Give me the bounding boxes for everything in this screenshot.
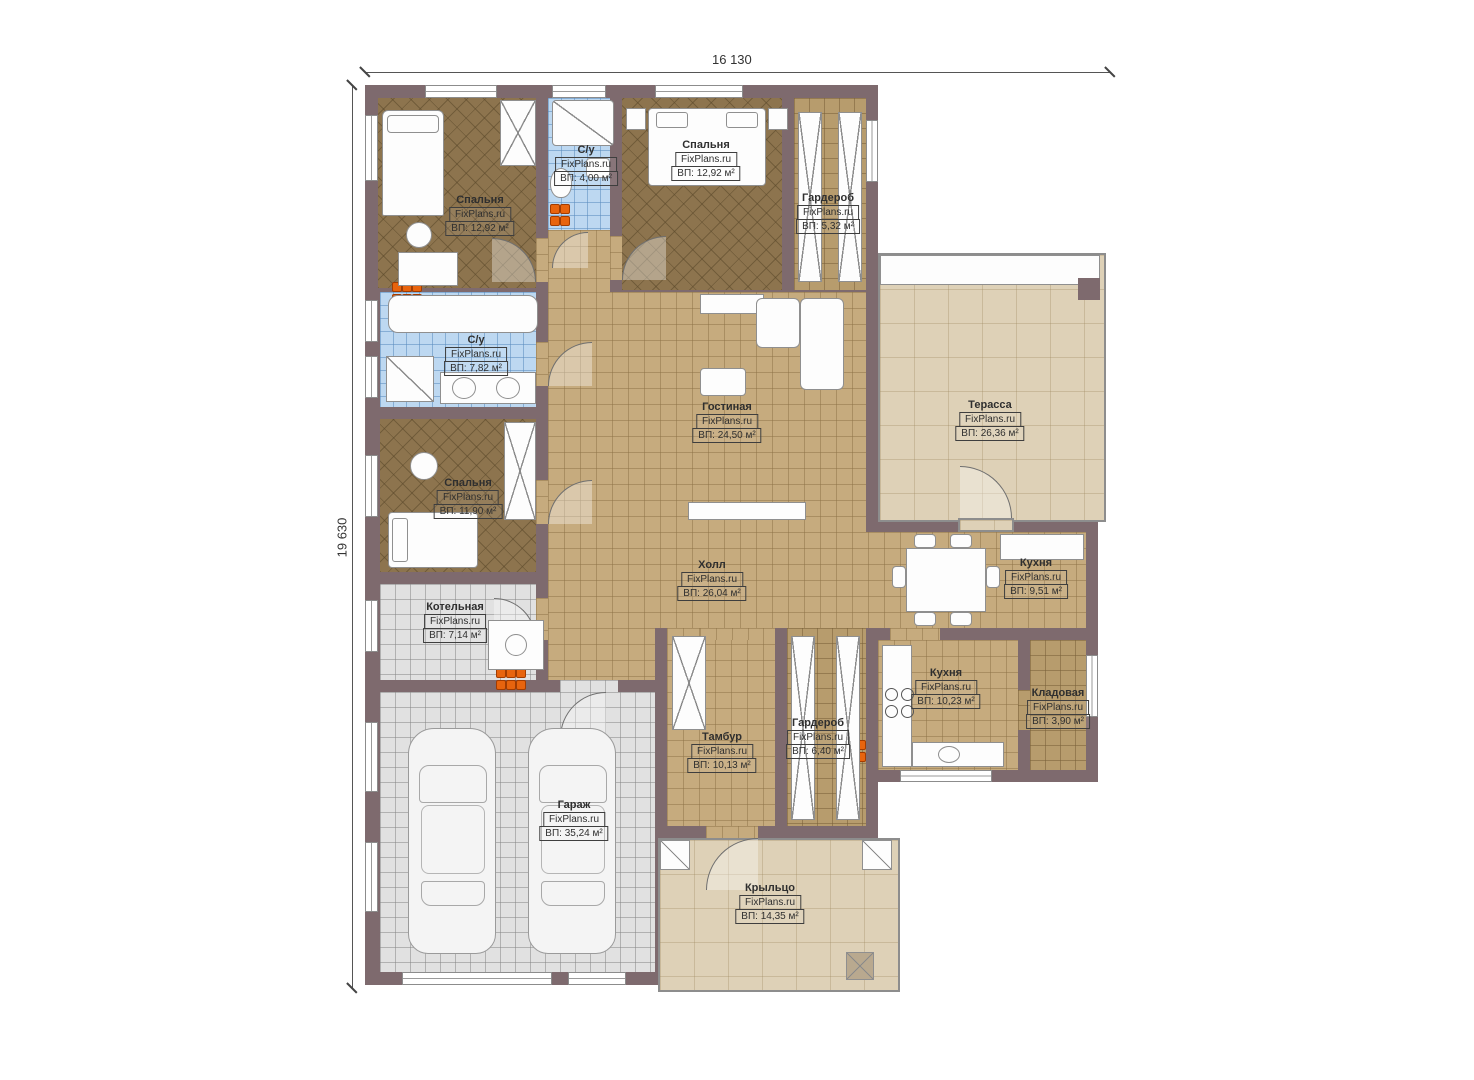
window (365, 300, 378, 342)
room-area: ВП: 14,35 м² (735, 909, 804, 924)
room-label-garage: Гараж FixPlans.ru ВП: 35,24 м² (539, 799, 608, 841)
porch-corner-hatch (660, 840, 690, 870)
room-brand: FixPlans.ru (555, 157, 617, 172)
room-label-wardrobe-top: Гардероб FixPlans.ru ВП: 5,32 м² (796, 192, 860, 234)
dimension-width-label: 16 130 (712, 52, 752, 67)
pillow-icon (392, 518, 408, 562)
car-icon (528, 728, 616, 954)
window (425, 85, 497, 98)
room-label-kitchen: Кухня FixPlans.ru ВП: 10,23 м² (911, 667, 980, 709)
room-area: ВП: 24,50 м² (692, 428, 761, 443)
door-gap (706, 826, 758, 838)
room-brand: FixPlans.ru (681, 572, 743, 587)
room-brand: FixPlans.ru (696, 414, 758, 429)
room-label-tambour: Тамбур FixPlans.ru ВП: 10,13 м² (687, 731, 756, 773)
dimension-line-top (365, 72, 1110, 73)
room-brand: FixPlans.ru (449, 207, 511, 222)
window (365, 722, 378, 792)
room-name: Гардероб (802, 192, 854, 205)
terrace-roof-edge (880, 255, 1100, 285)
room-name: Терасса (968, 399, 1012, 412)
dimension-height-label: 19 630 (334, 518, 349, 558)
door-gap (610, 236, 622, 280)
porch-corner-hatch (862, 840, 892, 870)
coffee-table-icon (700, 368, 746, 396)
door-gap (958, 518, 1014, 532)
window (655, 85, 743, 98)
room-name: С/у (577, 144, 594, 157)
sofa-icon (800, 298, 844, 390)
room-area: ВП: 4,00 м² (554, 171, 618, 186)
closet-icon (504, 422, 536, 520)
window (365, 115, 378, 181)
room-name: Спальня (444, 477, 492, 490)
window (552, 85, 606, 98)
room-area: ВП: 5,32 м² (796, 219, 860, 234)
room-name: Холл (698, 559, 726, 572)
room-brand: FixPlans.ru (543, 812, 605, 827)
heater-icon (550, 204, 568, 226)
chair-icon (950, 612, 972, 626)
room-label-terrace: Терасса FixPlans.ru ВП: 26,36 м² (955, 399, 1024, 441)
room-label-bedroom-top-left: Спальня FixPlans.ru ВП: 12,92 м² (445, 194, 514, 236)
chair-icon (410, 452, 438, 480)
door-gap (890, 628, 940, 640)
room-name: Кладовая (1032, 687, 1085, 700)
room-label-wc-middle: С/у FixPlans.ru ВП: 7,82 м² (444, 334, 508, 376)
room-name: Гараж (558, 799, 591, 812)
corridor-down (548, 628, 655, 680)
room-brand: FixPlans.ru (424, 614, 486, 629)
room-name: Спальня (456, 194, 504, 207)
room-name: С/у (467, 334, 484, 347)
room-area: ВП: 9,51 м² (1004, 584, 1068, 599)
garage-gate (402, 972, 552, 985)
window (365, 842, 378, 912)
room-name: Гостиная (702, 401, 752, 414)
room-area: ВП: 12,92 м² (671, 166, 740, 181)
tv-console-icon (688, 502, 806, 520)
room-name: Тамбур (702, 731, 742, 744)
room-brand: FixPlans.ru (1005, 570, 1067, 585)
dresser-icon (398, 252, 458, 286)
pillow-icon (726, 112, 758, 128)
shower-icon (552, 100, 614, 146)
sink-icon (452, 377, 476, 399)
bathtub-icon (388, 295, 538, 333)
room-label-living: Гостиная FixPlans.ru ВП: 24,50 м² (692, 401, 761, 443)
room-area: ВП: 7,14 м² (423, 628, 487, 643)
chair-icon (986, 566, 1000, 588)
heater-icon (496, 668, 524, 690)
chair-icon (950, 534, 972, 548)
room-label-porch: Крыльцо FixPlans.ru ВП: 14,35 м² (735, 882, 804, 924)
room-label-wc-top: С/у FixPlans.ru ВП: 4,00 м² (554, 144, 618, 186)
door-gap (536, 238, 548, 282)
room-brand: FixPlans.ru (437, 490, 499, 505)
window (900, 770, 992, 782)
porch-drain-grate (846, 952, 874, 980)
dining-table-icon (906, 548, 986, 612)
room-brand: FixPlans.ru (739, 895, 801, 910)
room-name: Кухня (1020, 557, 1052, 570)
floor-plan: 16 130 19 630 (0, 0, 1474, 1080)
room-brand: FixPlans.ru (445, 347, 507, 362)
chair-icon (892, 566, 906, 588)
room-name: Гардероб (792, 717, 844, 730)
room-area: ВП: 3,90 м² (1026, 714, 1090, 729)
room-label-boiler: Котельная FixPlans.ru ВП: 7,14 м² (423, 601, 487, 643)
window (365, 600, 378, 652)
sink-icon (938, 746, 960, 763)
window (568, 972, 626, 985)
room-name: Котельная (426, 601, 484, 614)
closet-icon (500, 100, 536, 166)
room-area: ВП: 10,13 м² (687, 758, 756, 773)
door-gap (560, 680, 618, 692)
sideboard-icon (700, 294, 764, 314)
boiler-icon (505, 634, 527, 656)
door-gap (536, 342, 548, 386)
room-brand: FixPlans.ru (1027, 700, 1089, 715)
chair-icon (914, 612, 936, 626)
pillow-icon (387, 115, 439, 133)
window (866, 120, 878, 182)
room-brand: FixPlans.ru (797, 205, 859, 220)
door-gap (536, 480, 548, 524)
room-brand: FixPlans.ru (787, 730, 849, 745)
room-area: ВП: 6,40 м² (786, 744, 850, 759)
room-label-pantry: Кладовая FixPlans.ru ВП: 3,90 м² (1026, 687, 1090, 729)
room-label-bedroom-left: Спальня FixPlans.ru ВП: 11,90 м² (434, 477, 503, 519)
stove-icon (885, 688, 913, 718)
room-label-wardrobe-bottom: Гардероб FixPlans.ru ВП: 6,40 м² (786, 717, 850, 759)
window (365, 356, 378, 398)
terrace-column (1078, 278, 1100, 300)
window (365, 455, 378, 517)
chair-icon (914, 534, 936, 548)
room-area: ВП: 12,92 м² (445, 221, 514, 236)
door-gap (700, 628, 750, 640)
room-brand: FixPlans.ru (915, 680, 977, 695)
nightstand-icon (626, 108, 646, 130)
room-brand: FixPlans.ru (959, 412, 1021, 427)
room-area: ВП: 26,04 м² (677, 586, 746, 601)
closet-icon (672, 636, 706, 730)
room-label-hall: Холл FixPlans.ru ВП: 26,04 м² (677, 559, 746, 601)
room-area: ВП: 10,23 м² (911, 694, 980, 709)
room-area: ВП: 35,24 м² (539, 826, 608, 841)
room-label-bedroom-top-center: Спальня FixPlans.ru ВП: 12,92 м² (671, 139, 740, 181)
chair-icon (406, 222, 432, 248)
room-area: ВП: 7,82 м² (444, 361, 508, 376)
dimension-line-left (352, 85, 353, 988)
car-icon (408, 728, 496, 954)
room-brand: FixPlans.ru (675, 152, 737, 167)
room-name: Спальня (682, 139, 730, 152)
room-name: Кухня (930, 667, 962, 680)
room-name: Крыльцо (745, 882, 795, 895)
room-brand: FixPlans.ru (691, 744, 753, 759)
room-label-kitchen-dining: Кухня FixPlans.ru ВП: 9,51 м² (1004, 557, 1068, 599)
pillow-icon (656, 112, 688, 128)
room-area: ВП: 26,36 м² (955, 426, 1024, 441)
sofa-chaise-icon (756, 298, 800, 348)
nightstand-icon (768, 108, 788, 130)
room-area: ВП: 11,90 м² (434, 504, 503, 519)
sink-icon (496, 377, 520, 399)
shower-icon (386, 356, 434, 402)
